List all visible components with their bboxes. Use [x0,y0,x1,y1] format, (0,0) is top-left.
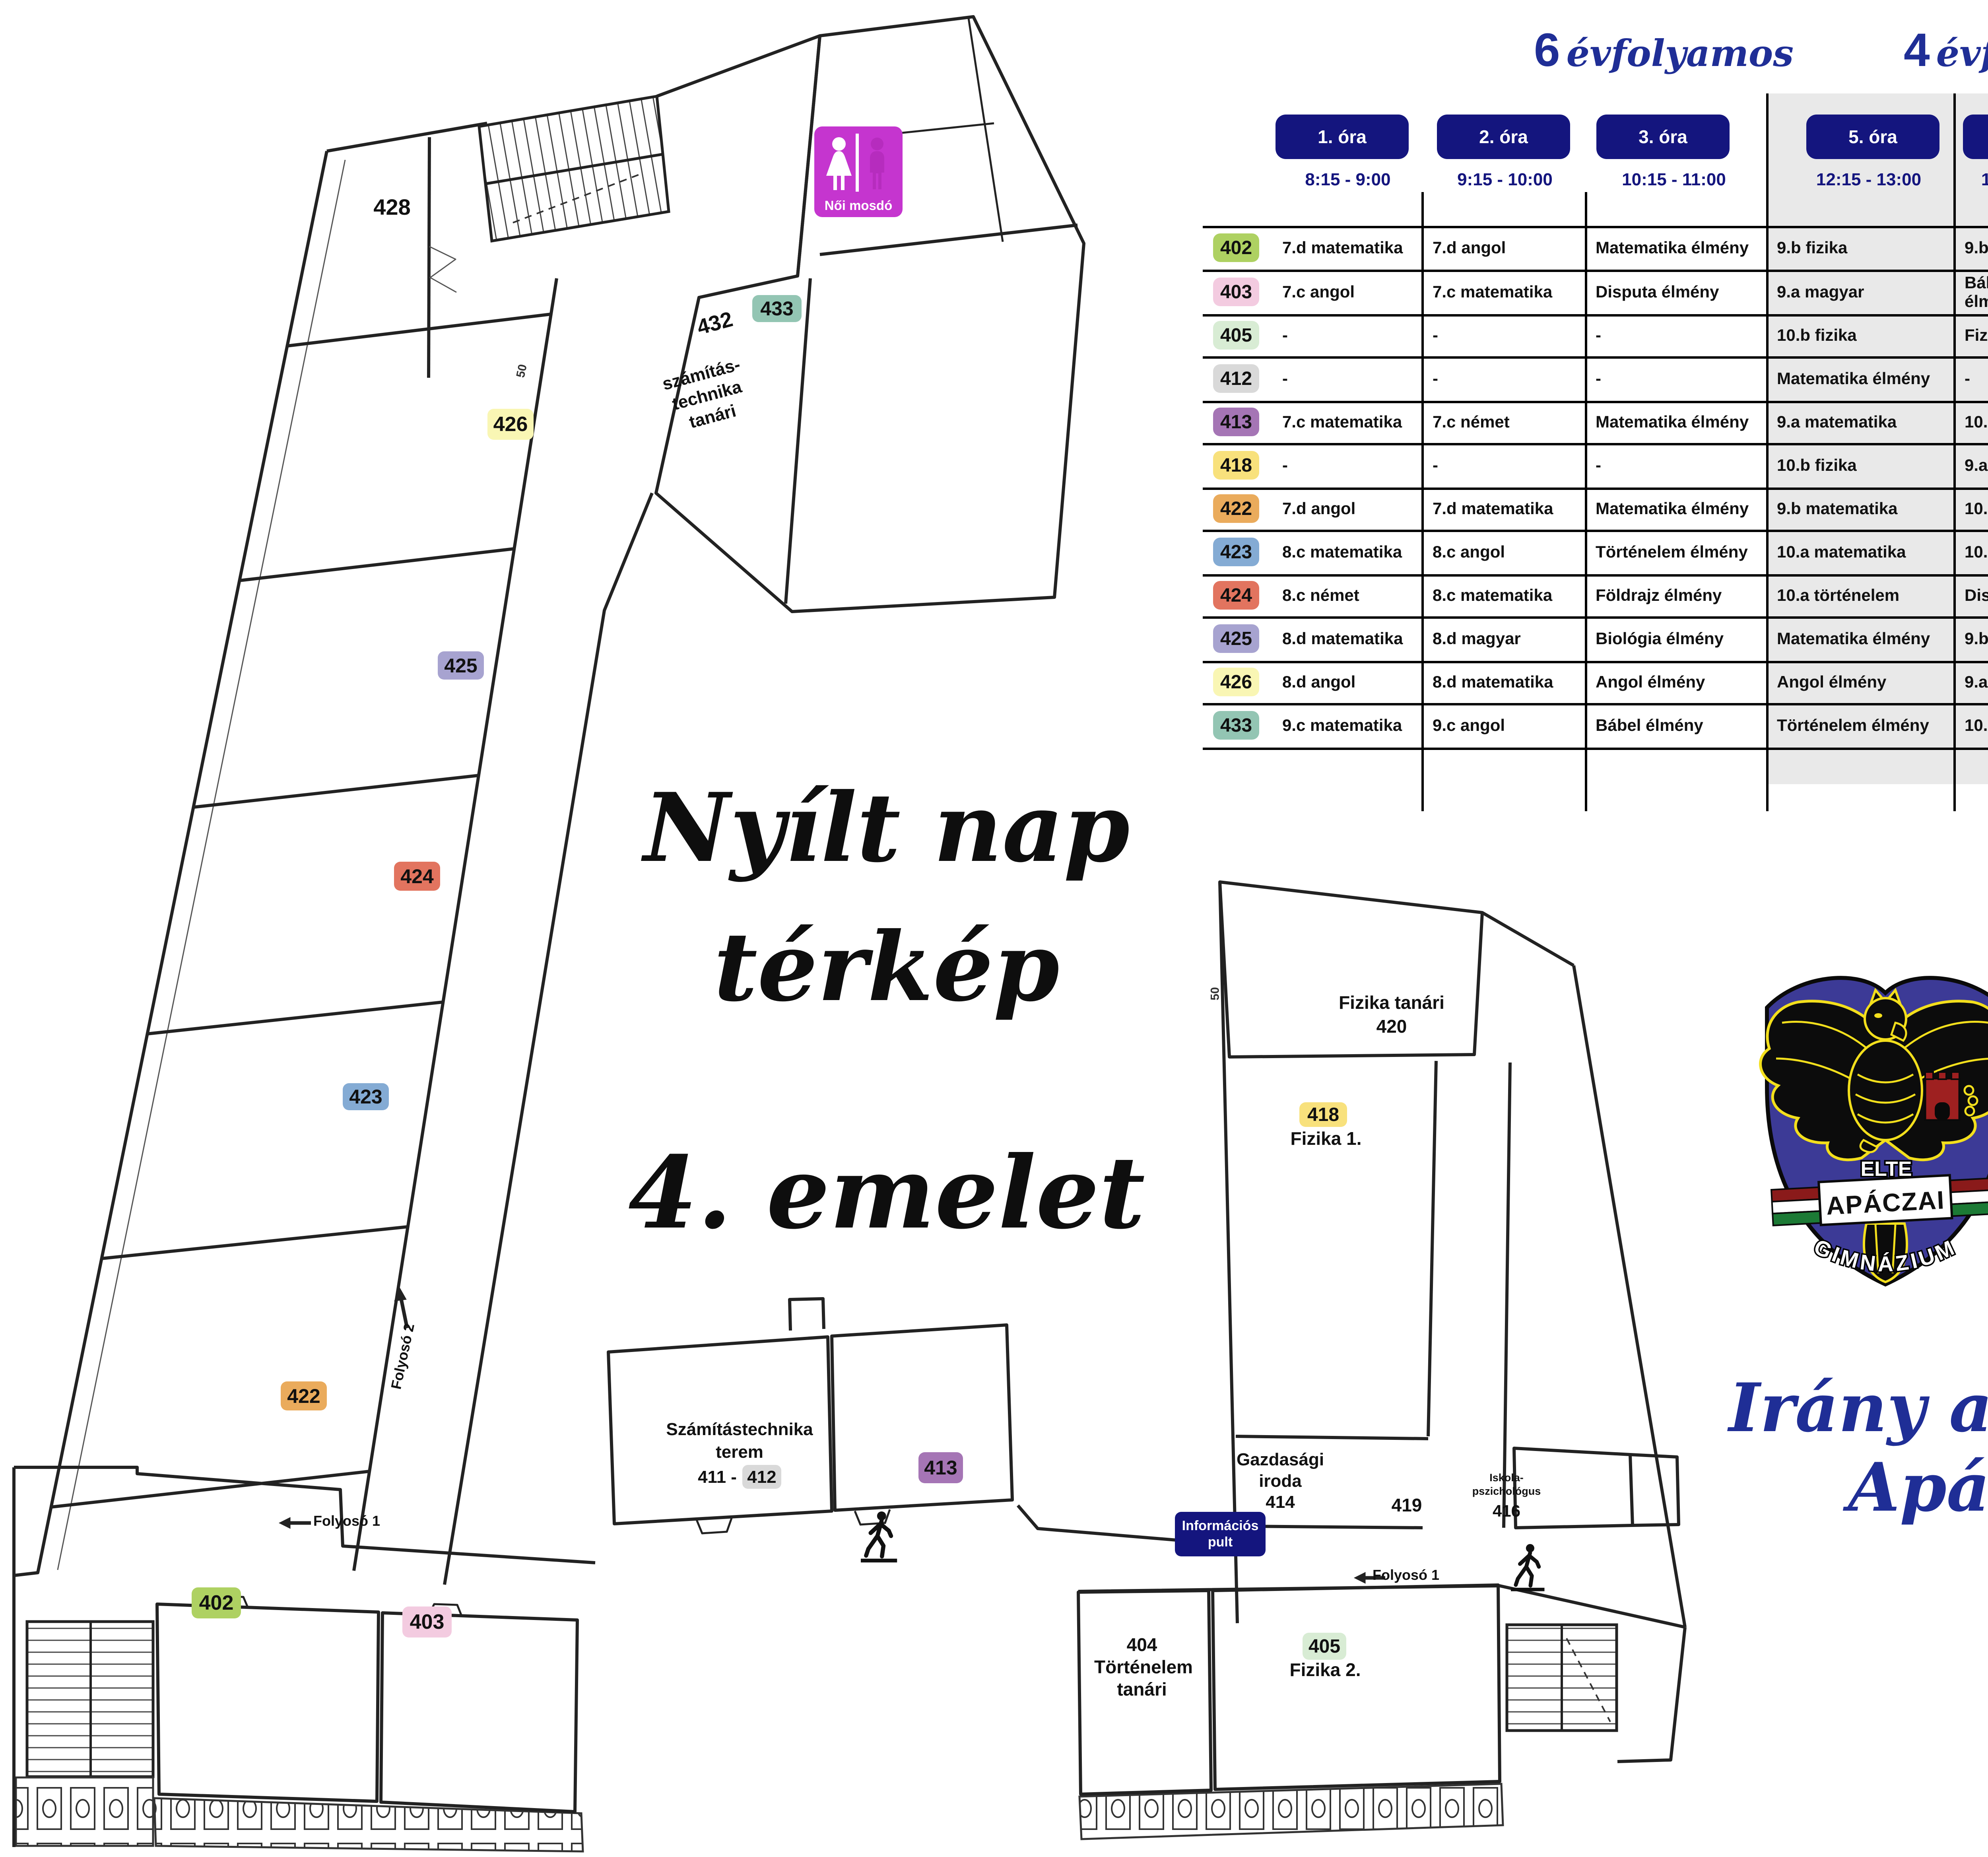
table-row-424: 424 8.c német 8.c matematika Földrajz él… [1203,574,1988,616]
row-badge: 422 [1213,494,1259,523]
label-line: 404 [1094,1634,1190,1656]
cell: 8.c matematika [1433,574,1580,616]
table-row-418: 418 - - - 10.b fizika 9.a fizika [1203,443,1988,488]
row-badge: 426 [1213,668,1259,696]
group-label: évfolyamos [1567,32,1794,75]
row-badge: 403 [1213,278,1259,306]
cell: - [1965,356,1988,401]
restroom-pictogram [814,126,903,194]
map-title-line2: térkép [620,898,1153,1037]
cell: Biológia élmény [1596,616,1767,661]
cell: - [1596,443,1767,488]
label-line: iroda [1225,1470,1336,1492]
group-number: 4 [1904,23,1930,77]
room-badge-413: 413 [918,1452,963,1483]
corridor-label-folyoso1-left: Folyosó 1 [313,1513,380,1529]
female-icon [826,137,852,190]
cell: 8.d magyar [1433,616,1580,661]
time-range-1: 8:15 - 9:00 [1268,170,1427,191]
cell: 7.d matematika [1433,488,1580,530]
label-line: 420 [1308,1015,1475,1039]
room-badge-402: 402 [192,1587,241,1618]
table-row-423: 423 8.c matematika 8.c angol Történelem … [1203,530,1988,574]
room-badge-424: 424 [394,862,440,891]
cell: Fizika élmény [1965,314,1988,356]
time-range-6: 13:15 - 14:00 [1954,170,1988,191]
column-header-3-ora: 3. óra [1596,115,1730,159]
label-line: Gazdasági [1225,1449,1336,1470]
cell: 7.d matematika [1282,226,1421,270]
room-label-416: Iskola- pszichológus 416 [1469,1471,1544,1521]
room-label-411-412: Számítástechnika terem 411 - 412 [648,1418,831,1489]
cell: Matematika élmény [1777,616,1952,661]
room-label-419: 419 [1383,1494,1431,1516]
row-badge: 423 [1213,538,1259,566]
room-label-404: 404 Történelem tanári [1094,1634,1190,1700]
cell: 8.c matematika [1282,530,1421,574]
label-line: Számítástechnika [648,1418,831,1441]
slogan: Irány az Apáczai! [1729,1368,1988,1527]
table-row-422: 422 7.d angol 7.d matematika Matematika … [1203,488,1988,530]
table-row-403: 403 7.c angol 7.c matematika Disputa élm… [1203,270,1988,314]
cell: Disputa élmény [1965,574,1988,616]
label-line: 416 [1469,1501,1544,1522]
sign-label: Női mosdó [814,198,903,213]
cell: Történelem élmény [1596,530,1767,574]
label-411-prefix: 411 - [698,1466,737,1488]
room-badge-418: 418 [1299,1102,1347,1127]
row-badge: 412 [1213,364,1259,393]
cell: 7.d angol [1282,488,1421,530]
room-badge-423: 423 [343,1083,389,1110]
cell: - [1596,314,1767,356]
cell: Angol élmény [1596,661,1767,703]
cell: Matematika élmény [1596,488,1767,530]
room-label-418-name: Fizika 1. [1280,1128,1372,1149]
cell: 8.d matematika [1433,661,1580,703]
time-range-5: 12:15 - 13:00 [1781,170,1956,191]
cell: 10.a magyar [1965,703,1988,748]
label-line: Iskola- [1469,1471,1544,1485]
table-row-433: 433 9.c matematika 9.c angol Bábel élmén… [1203,703,1988,748]
cell: - [1282,314,1421,356]
cell: 9.b fizika [1777,226,1952,270]
cell: 9.a történelem [1965,661,1988,703]
cell: - [1433,356,1580,401]
cell: Disputa élmény [1596,270,1767,314]
cell: Matematika élmény [1596,226,1767,270]
map-title-line1: Nyílt nap [620,759,1153,898]
label-line: Fizika tanári [1308,991,1475,1015]
cell: 9.c angol [1433,703,1580,748]
cell: 8.d matematika [1282,616,1421,661]
info-desk-sign: Információs pult [1175,1512,1266,1556]
cell: 9.a matematika [1777,401,1952,443]
cell: 10.b fizika [1777,443,1952,488]
cell: 10.a történelem [1777,574,1952,616]
open-day-map-poster: 428 432 számítás- technika tanári Fizika… [0,0,1988,1857]
cell: 8.c angol [1433,530,1580,574]
row-badge: 433 [1213,711,1259,740]
cell: 9.a fizika [1965,443,1988,488]
cell: 10.b földrajz [1965,488,1988,530]
cell: 7.c német [1433,401,1580,443]
room-badge-426: 426 [487,409,534,440]
group-label: évfolyamos [1936,32,1988,75]
group-header-4-evfolyamos: 4 évfolyamos [1904,23,1988,77]
time-range-2: 9:15 - 10:00 [1427,170,1582,191]
map-title: Nyílt nap térkép [620,759,1153,1037]
room-badge-403: 403 [402,1606,452,1638]
room-label-420: Fizika tanári 420 [1308,991,1475,1039]
cell: 8.d angol [1282,661,1421,703]
room-label-405-name: Fizika 2. [1279,1659,1371,1680]
room-badge-433: 433 [752,295,802,322]
cell: Matematika élmény [1777,356,1952,401]
corridor-label-folyoso1-right: Folyosó 1 [1373,1567,1439,1583]
row-badge: 424 [1213,581,1259,610]
label-line: 411 - 412 [648,1465,831,1489]
column-header-6-ora: 6. óra [1963,115,1988,159]
cell: - [1433,443,1580,488]
male-ghost-icon [870,138,884,189]
floor-title: 4. emelet [596,1134,1177,1251]
row-badge: 425 [1213,624,1259,653]
slogan-line2: Apáczai! [1848,1447,1988,1527]
cell: 9.a magyar [1777,270,1952,314]
cell: Földrajz élmény [1596,574,1767,616]
cell: Bábeli nyelvzavar élmény [1965,270,1988,314]
table-row-413: 413 7.c matematika 7.c német Matematika … [1203,401,1988,443]
table-row-412: 412 - - - Matematika élmény - [1203,356,1988,401]
divider-line [856,134,859,192]
row-badge: 413 [1213,408,1259,436]
cell: Történelem élmény [1777,703,1952,748]
cell: 7.c matematika [1433,270,1580,314]
label-line: tanári [1094,1678,1190,1700]
cell: - [1282,443,1421,488]
cell: 9.b matematika [1965,226,1988,270]
column-header-5-ora: 5. óra [1806,115,1939,159]
slogan-line1: Irány az [1729,1368,1988,1447]
table-row-425: 425 8.d matematika 8.d magyar Biológia é… [1203,616,1988,661]
cell: Bábel élmény [1596,703,1767,748]
sign-label-line: Információs [1182,1518,1259,1534]
row-badge: 418 [1213,451,1259,480]
group-number: 6 [1534,23,1560,77]
cell: 10.b matematika [1965,530,1988,574]
cell: 9.c matematika [1282,703,1421,748]
dimension-label-50: 50 [514,363,530,379]
time-range-3: 10:15 - 11:00 [1586,170,1761,191]
label-line: pszichológus [1469,1485,1544,1498]
room-label-428: 428 [356,194,428,220]
cell: 9.b biológia [1965,616,1988,661]
grid-line [1203,748,1988,750]
cell: 10.a matematika [1777,530,1952,574]
cell: 9.b matematika [1777,488,1952,530]
column-header-1-ora: 1. óra [1276,115,1409,159]
dimension-label-50: 50 [1209,987,1222,1000]
table-row-405: 405 - - - 10.b fizika Fizika élmény [1203,314,1988,356]
label-line: 414 [1225,1492,1336,1513]
label-line: Történelem [1094,1656,1190,1678]
cell: 7.c angol [1282,270,1421,314]
label-line: terem [648,1441,831,1463]
cell: - [1433,314,1580,356]
cell: Angol élmény [1777,661,1952,703]
school-crest: ELTE APÁCZAI GIMNÁZIUM [1738,959,1988,1321]
room-badge-422: 422 [281,1381,327,1410]
group-header-6-evfolyamos: 6 évfolyamos [1534,23,1794,77]
row-badge: 405 [1213,321,1259,350]
cell: Matematika élmény [1596,401,1767,443]
cell: 8.c német [1282,574,1421,616]
cell: 7.d angol [1433,226,1580,270]
schedule-table: 1. óra 2. óra 3. óra 5. óra 6. óra 8:15 … [1203,93,1988,811]
table-row-402: 402 7.d matematika 7.d angol Matematika … [1203,226,1988,270]
womens-restroom-sign: Női mosdó [814,126,903,217]
column-header-2-ora: 2. óra [1437,115,1570,159]
row-badge: 402 [1213,233,1259,262]
room-badge-425: 425 [438,651,484,680]
sign-label-line: pult [1208,1534,1233,1550]
cell: 10.a fizika [1965,401,1988,443]
cell: - [1596,356,1767,401]
cell: 7.c matematika [1282,401,1421,443]
cell: - [1282,356,1421,401]
room-label-414: Gazdasági iroda 414 [1225,1449,1336,1513]
table-row-426: 426 8.d angol 8.d matematika Angol élmén… [1203,661,1988,703]
cell: 10.b fizika [1777,314,1952,356]
room-badge-412-map: 412 [742,1465,781,1489]
room-badge-405: 405 [1303,1633,1346,1660]
